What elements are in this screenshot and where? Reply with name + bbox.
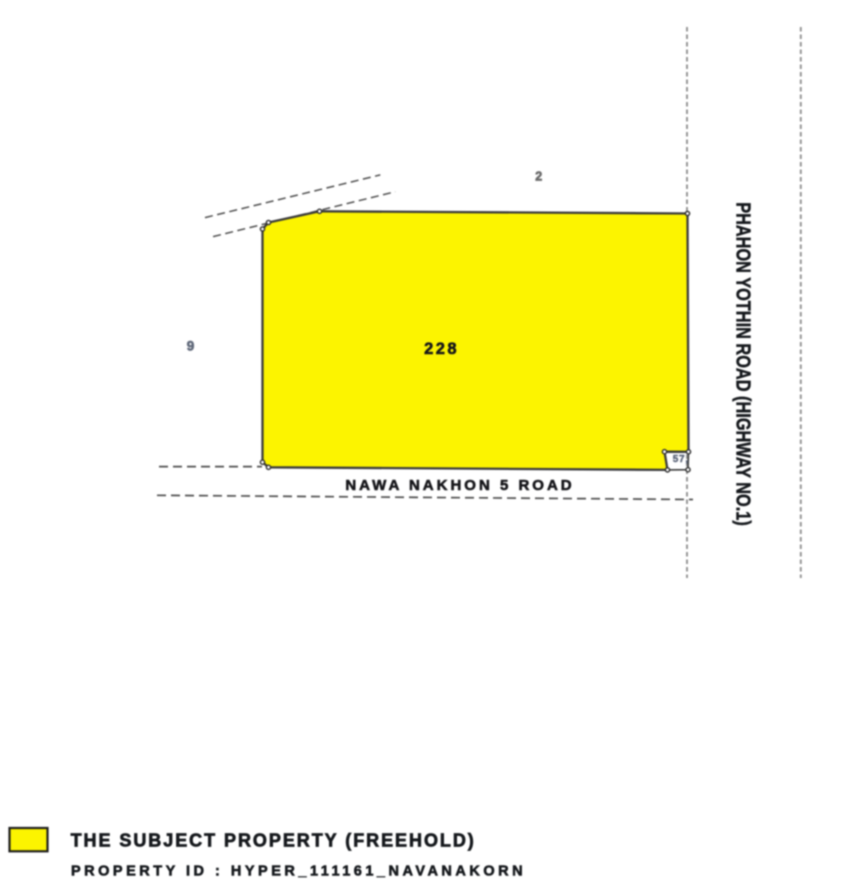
svg-text:228: 228 <box>424 340 459 358</box>
svg-text:NAWA NAKHON 5 ROAD: NAWA NAKHON 5 ROAD <box>345 477 574 494</box>
svg-text:9: 9 <box>187 338 195 353</box>
svg-text:PHAHON YOTHIN ROAD (HIGHWAY NO: PHAHON YOTHIN ROAD (HIGHWAY NO.1) <box>732 202 755 526</box>
svg-text:THE SUBJECT PROPERTY (FREEHOLD: THE SUBJECT PROPERTY (FREEHOLD) <box>71 830 476 850</box>
svg-text:2: 2 <box>535 170 542 184</box>
svg-text:PROPERTY ID : HYPER_111161_NAV: PROPERTY ID : HYPER_111161_NAVANAKORN <box>71 863 526 879</box>
svg-text:57,: 57, <box>673 454 689 465</box>
